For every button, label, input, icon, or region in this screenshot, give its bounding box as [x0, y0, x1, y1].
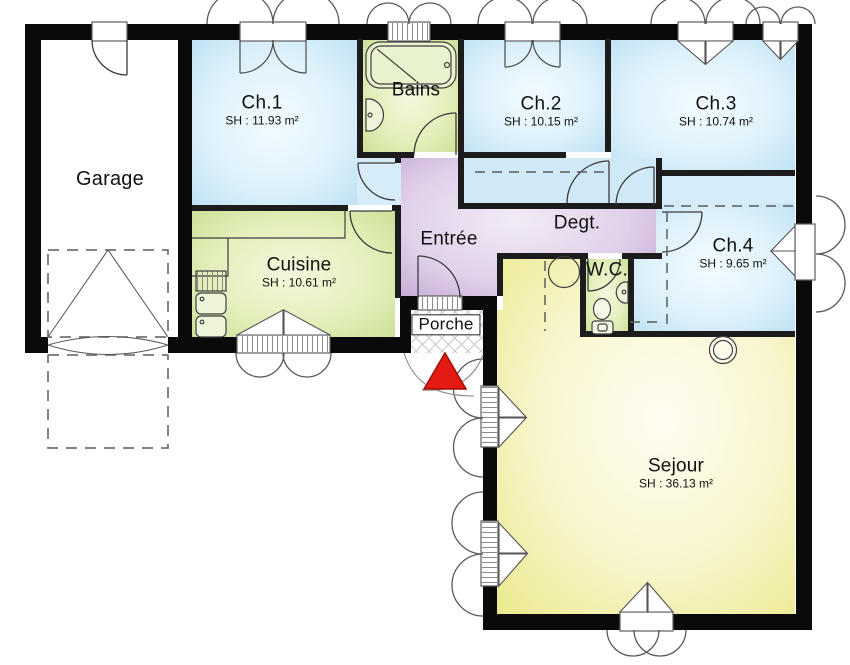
- room-label-porche: Porche: [411, 314, 480, 335]
- closet-strip-floor: [464, 158, 658, 203]
- garage-door-top: [92, 22, 127, 41]
- room-label-ch4: Ch.4 SH : 9.65 m²: [699, 236, 766, 269]
- window-ch3b: [763, 22, 798, 41]
- room-label-garage: Garage: [76, 169, 144, 191]
- window-ch4: [795, 224, 815, 280]
- window-ch3: [678, 22, 733, 41]
- room-label-degt: Degt.: [554, 214, 600, 235]
- stove-column-icon: [710, 337, 737, 364]
- room-label-entree: Entrée: [420, 230, 477, 251]
- room-label-wc: W.C.: [586, 261, 628, 282]
- window-sejour-bottom: [620, 612, 673, 631]
- window-ch1: [240, 22, 306, 41]
- room-label-bains: Bains: [392, 81, 441, 102]
- window-ch2: [505, 22, 560, 41]
- room-label-ch2: Ch.2 SH : 10.15 m²: [504, 94, 578, 127]
- room-label-sejour: Sejour SH : 36.13 m²: [639, 456, 713, 489]
- room-label-ch1: Ch.1 SH : 11.93 m²: [225, 93, 298, 126]
- room-label-ch3: Ch.3 SH : 10.74 m²: [679, 94, 753, 127]
- floor-plan: Garage Ch.1 SH : 11.93 m² Bains Ch.2 SH …: [0, 0, 850, 665]
- room-ch4-upper-floor: [662, 176, 795, 203]
- room-label-cuisine: Cuisine SH : 10.61 m²: [262, 255, 336, 288]
